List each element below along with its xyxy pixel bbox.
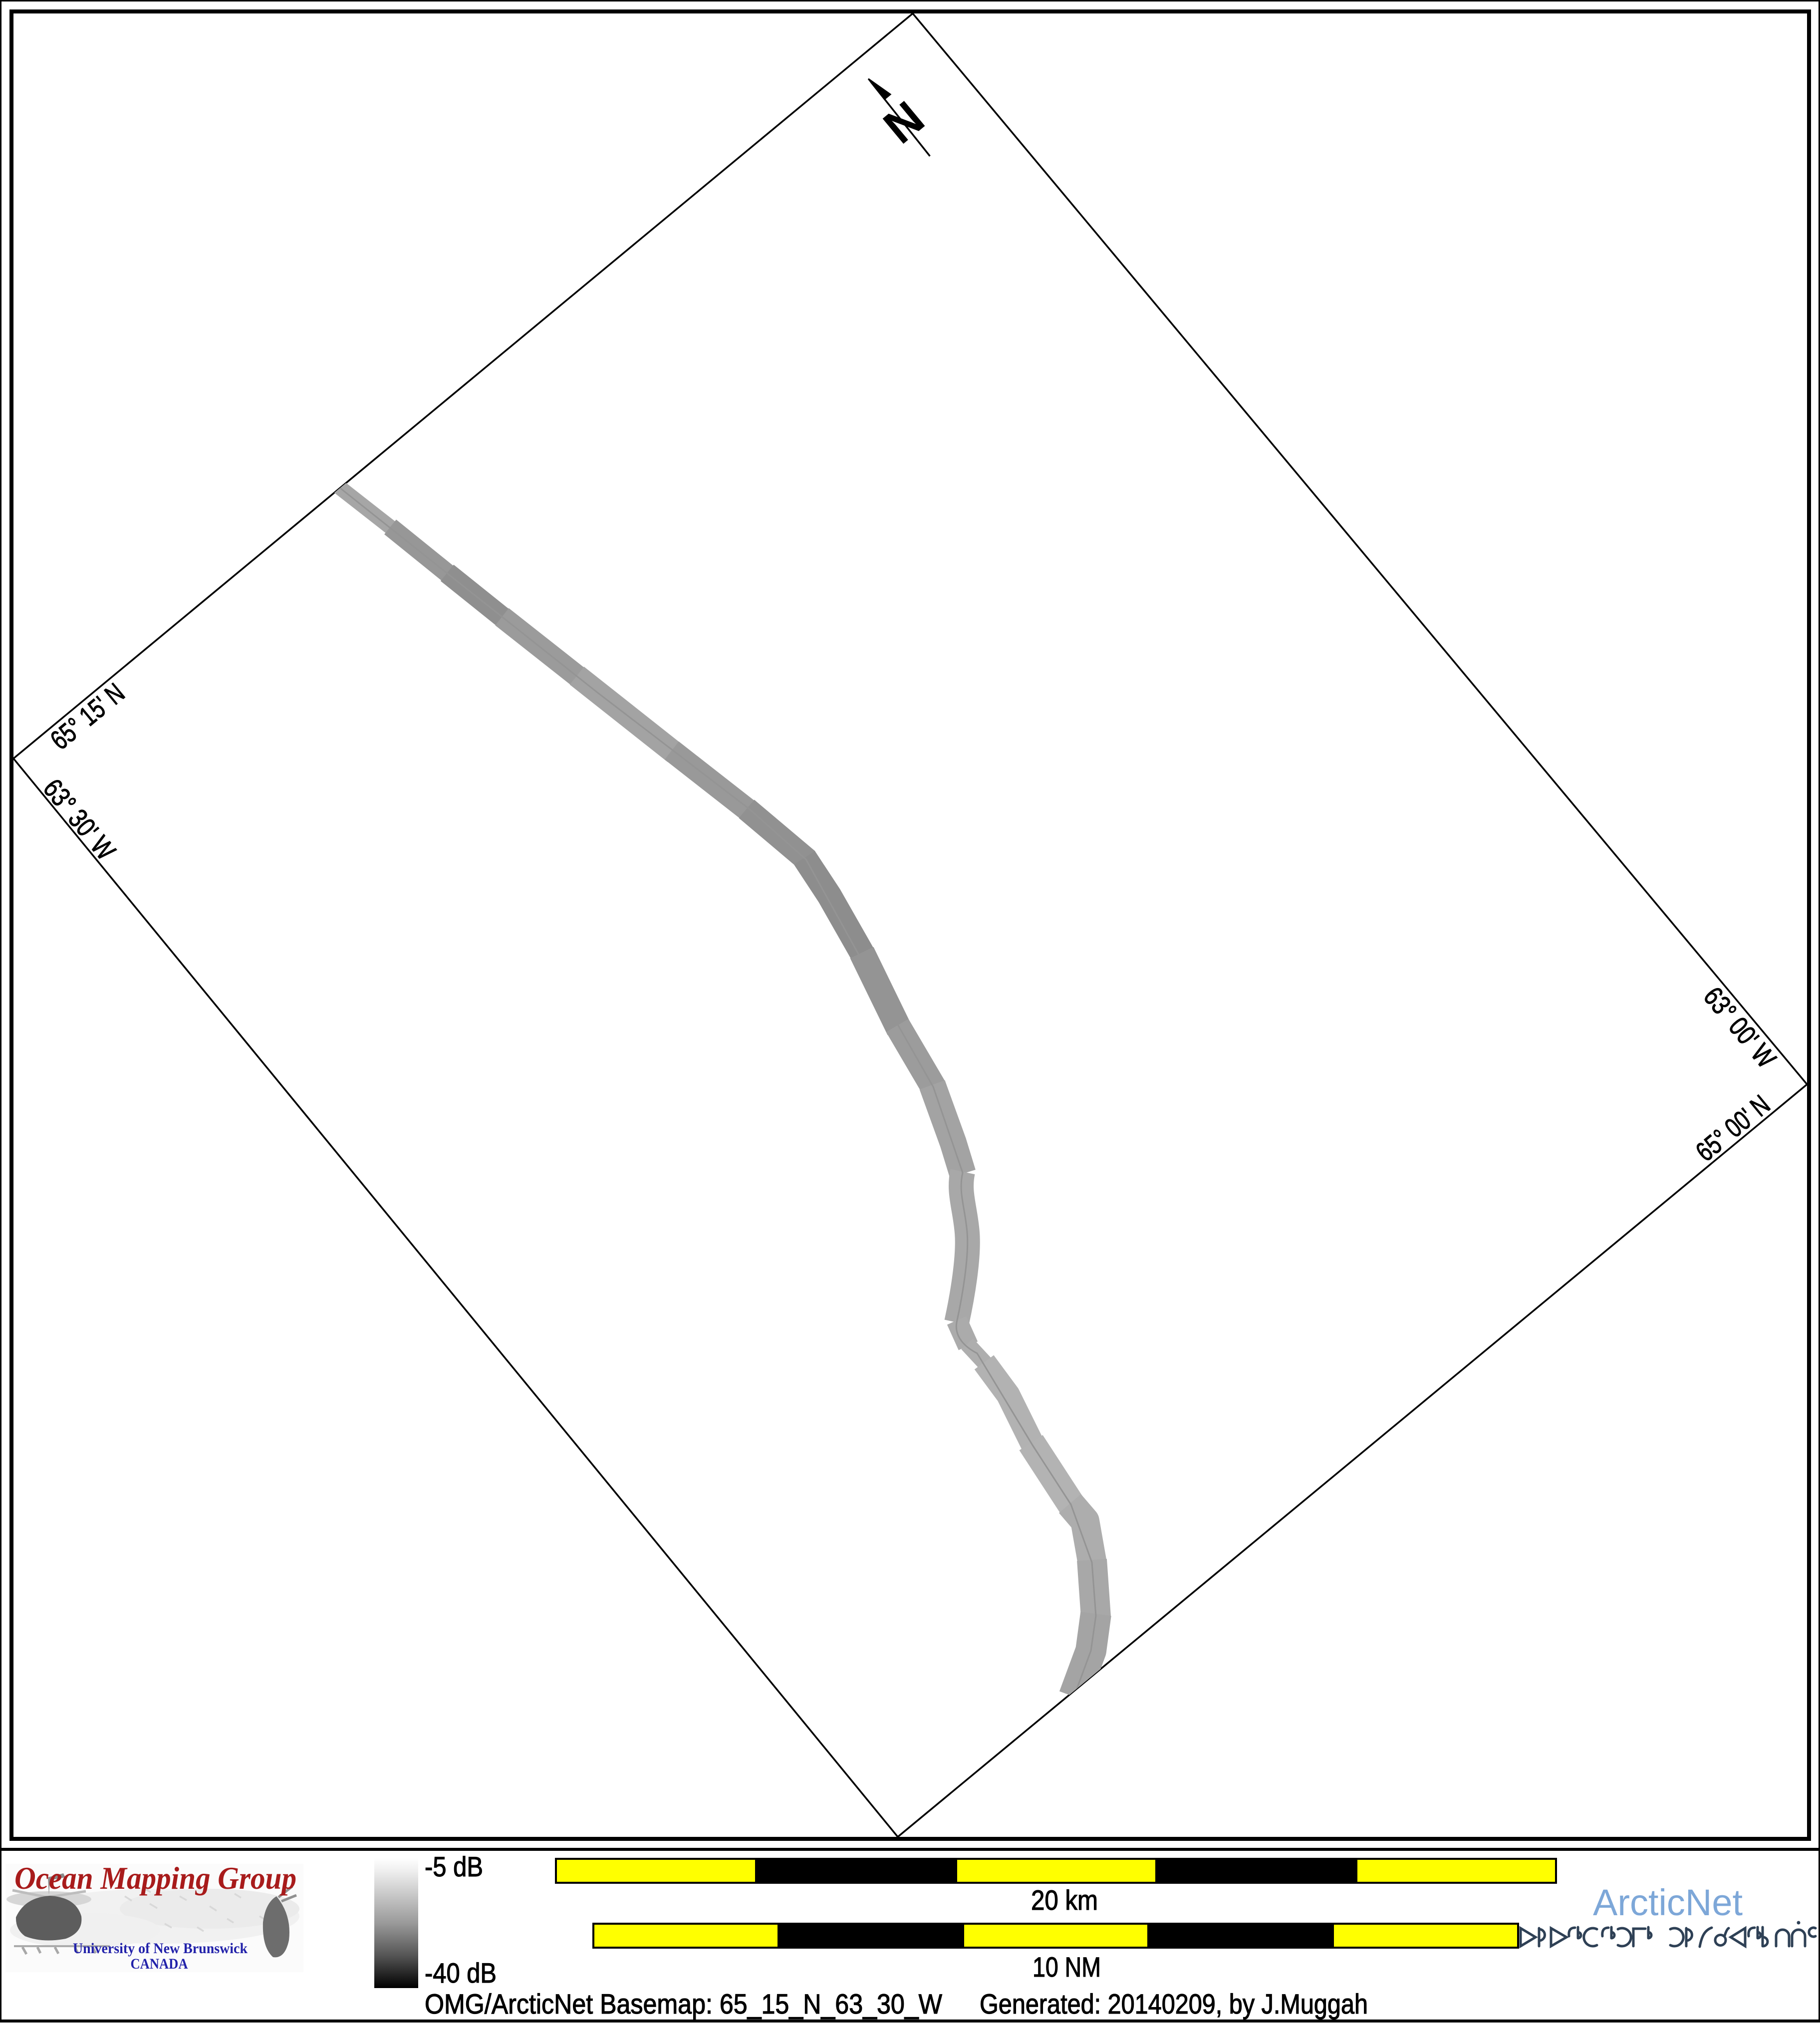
- svg-text:-5 dB: -5 dB: [425, 1851, 483, 1882]
- svg-text:ArcticNet: ArcticNet: [1593, 1882, 1743, 1923]
- svg-text:20 km: 20 km: [1031, 1884, 1098, 1916]
- svg-text:OMG/ArcticNet Basemap: 65_15_N: OMG/ArcticNet Basemap: 65_15_N_63_30_W: [425, 1988, 942, 2020]
- svg-text:-40 dB: -40 dB: [425, 1957, 497, 1989]
- svg-text:CANADA: CANADA: [131, 1956, 188, 1972]
- svg-text:Generated: 20140209, by J.Mugg: Generated: 20140209, by J.Muggah: [980, 1988, 1368, 2020]
- svg-text:University of New Brunswick: University of New Brunswick: [73, 1940, 248, 1957]
- svg-text:10 NM: 10 NM: [1033, 1951, 1101, 1983]
- svg-text:Ocean Mapping Group: Ocean Mapping Group: [14, 1860, 296, 1896]
